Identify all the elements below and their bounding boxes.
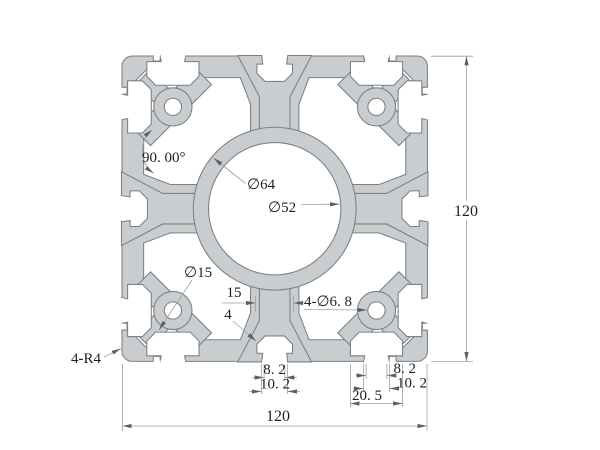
overall-width-label: 120 [266, 408, 290, 425]
boss-diameter-label: ∅15 [184, 265, 212, 281]
extrusion-profile-drawing: 90. 00° ∅64 ∅52 ∅15 15 4 4-∅6. 8 4-R4 12… [0, 0, 600, 450]
corner-radius-label: 4-R4 [71, 351, 102, 367]
overall-height-label: 120 [454, 203, 478, 220]
bore-diameter-label: ∅52 [268, 200, 296, 216]
angle-dimension-label: 90. 00° [142, 150, 186, 166]
corner-slot-outer-label: 10. 2 [397, 376, 427, 392]
leader-corner-radius [104, 349, 121, 358]
center-slot-outer-label: 10. 2 [260, 377, 290, 393]
corner-slot-head-label: 20. 5 [352, 388, 382, 404]
drawing-canvas: 90. 00° ∅64 ∅52 ∅15 15 4 4-∅6. 8 4-R4 12… [0, 0, 600, 450]
outer-diameter-label: ∅64 [247, 177, 276, 193]
wall-thickness-label: 4 [224, 307, 232, 323]
web-width-label: 15 [227, 285, 242, 301]
corner-holes-label: 4-∅6. 8 [304, 294, 352, 310]
